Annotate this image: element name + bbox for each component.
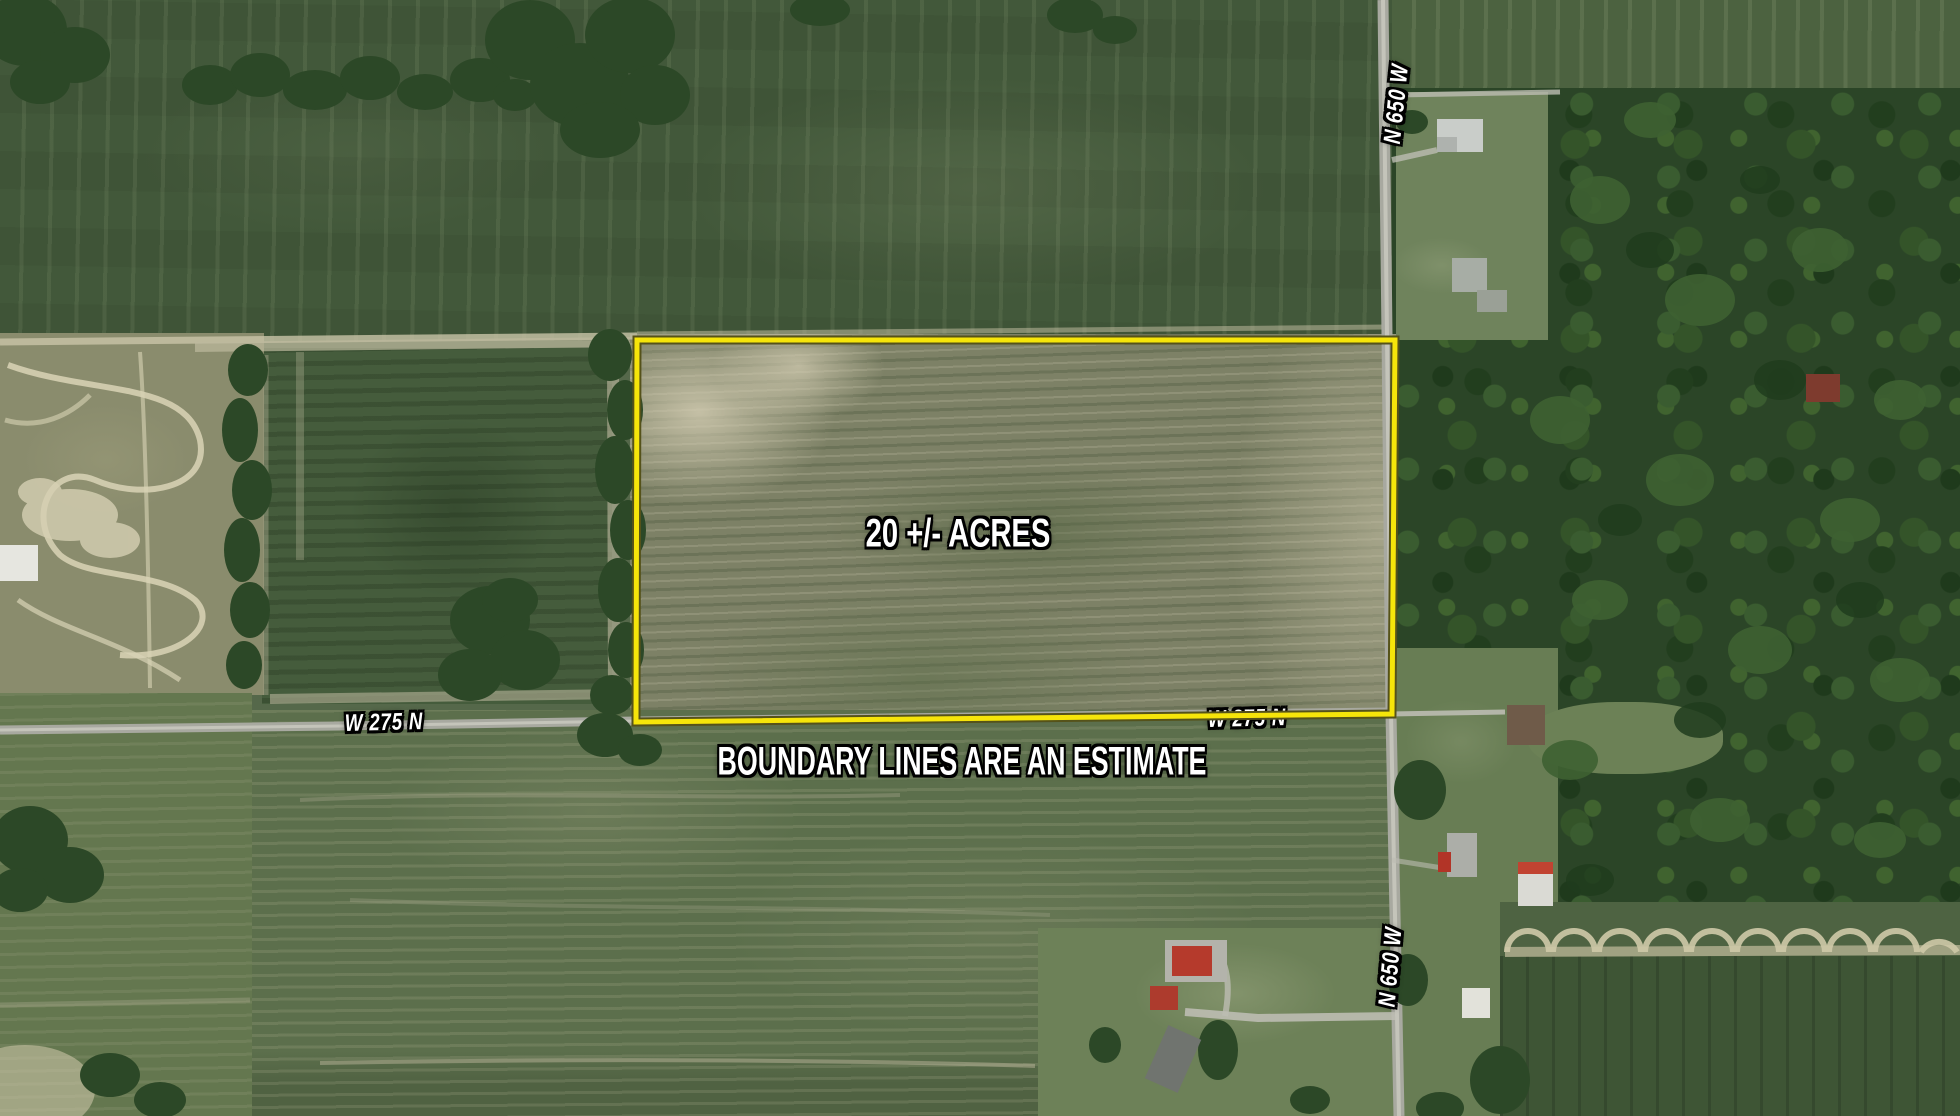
road-label-w275n-west: W 275 N xyxy=(345,708,424,738)
satellite-map: W 275 N 20 +/- ACRES BOUNDARY LINES ARE … xyxy=(0,0,1960,1116)
parcel-boundary-layer xyxy=(0,0,1960,1116)
acreage-label: 20 +/- ACRES xyxy=(866,512,1051,557)
disclaimer-label: BOUNDARY LINES ARE AN ESTIMATE xyxy=(718,740,1207,785)
